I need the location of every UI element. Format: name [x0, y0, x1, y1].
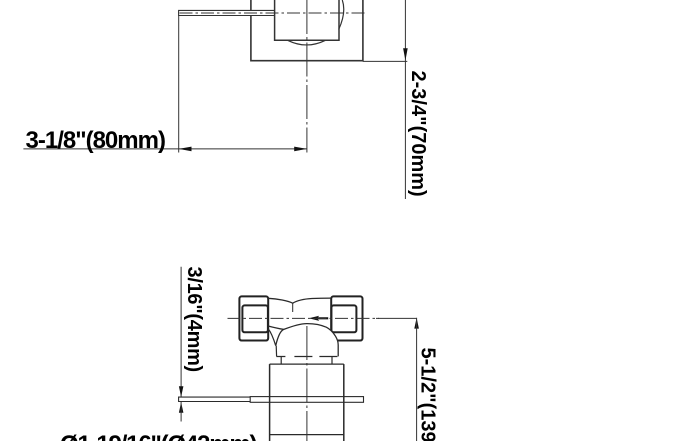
svg-text:3/16"(4mm): 3/16"(4mm): [183, 267, 205, 372]
svg-text:5-1/2"(139mm): 5-1/2"(139mm): [417, 348, 439, 441]
svg-text:3-1/8"(80mm): 3-1/8"(80mm): [26, 127, 165, 154]
svg-text:Ø1-19/16"(Ø42mm): Ø1-19/16"(Ø42mm): [60, 431, 256, 441]
svg-text:2-3/4"(70mm): 2-3/4"(70mm): [407, 71, 429, 197]
